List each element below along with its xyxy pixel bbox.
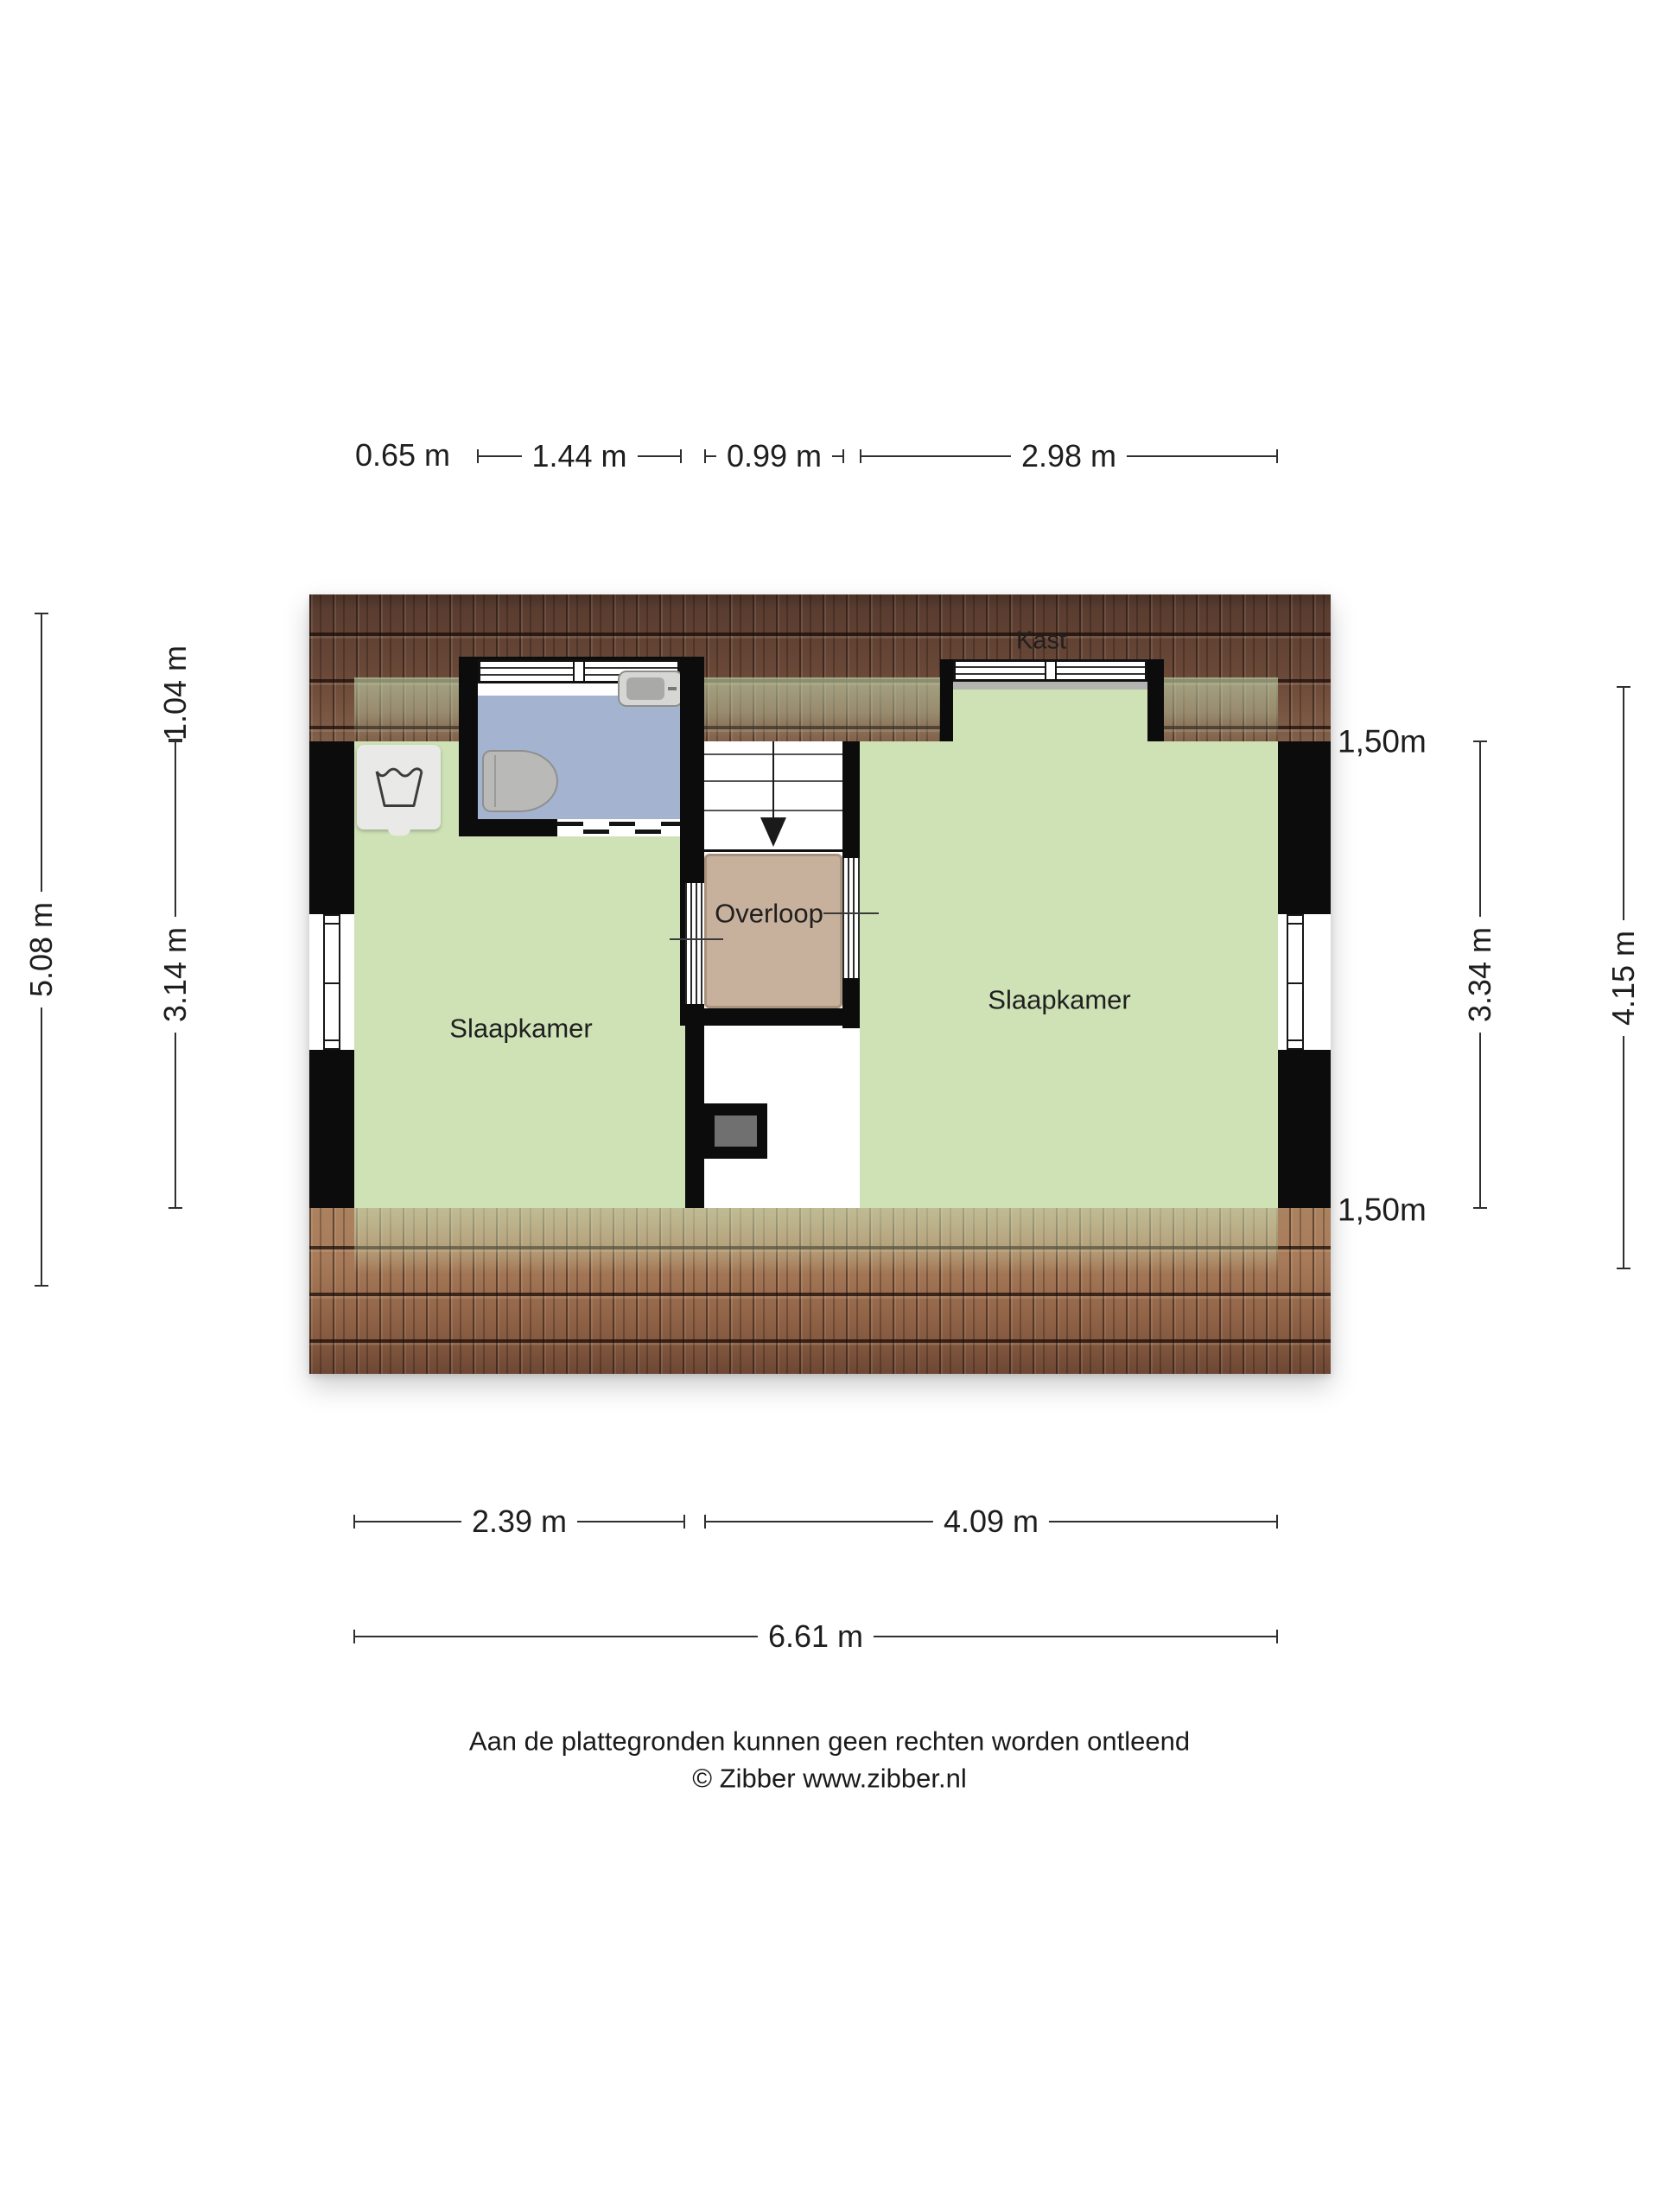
dim-right-outer-label: 4.15 m <box>1606 919 1641 1035</box>
bedroom-right-label: Slaapkamer <box>988 987 1130 1014</box>
bathroom-wall-left <box>459 659 478 826</box>
dim-left-upper-label: 1.04 m <box>158 635 193 751</box>
window-right-glazing <box>1287 914 1304 1050</box>
dim-bottom-total-label: 6.61 m <box>758 1619 874 1654</box>
dim-bottom-left-label: 2.39 m <box>461 1504 577 1539</box>
dim-right-outer: 4.15 m <box>1623 687 1624 1268</box>
dim-left-lower-label: 3.14 m <box>158 917 193 1033</box>
window-left <box>309 914 354 1050</box>
dim-top-0: 0.65 m <box>355 440 450 471</box>
dim-bottom-right: 4.09 m <box>705 1521 1277 1522</box>
closet-window <box>953 659 1147 682</box>
floorplan-drawing: Kast <box>309 594 1331 1374</box>
footer-credit: © Zibber www.zibber.nl <box>692 1762 966 1794</box>
stairwell-wall-right-upper <box>842 741 860 858</box>
washing-machine <box>357 745 441 829</box>
sink <box>618 671 683 707</box>
window-right <box>1278 914 1331 1050</box>
bathroom-sliding-door <box>557 819 683 836</box>
closet-floor <box>953 688 1147 741</box>
closet-window-mullion <box>1045 662 1057 679</box>
faucet-icon <box>668 687 677 690</box>
stairs <box>704 741 842 852</box>
bathroom-window-mullion <box>573 662 585 681</box>
footer-disclaimer: Aan de plattegronden kunnen geen rechten… <box>469 1725 1190 1757</box>
sliding-door-dash <box>557 829 683 834</box>
dim-right-inner: 3.34 m <box>1479 741 1481 1208</box>
sliding-door-dash <box>557 822 683 826</box>
dim-left-lower: 3.14 m <box>175 741 176 1208</box>
dim-top-2: 0.99 m <box>705 455 843 457</box>
laundry-icon <box>373 765 425 810</box>
landing-leader-line <box>823 912 879 914</box>
washer-notch <box>388 829 410 836</box>
height-marker-top: 1,50m <box>1338 726 1427 758</box>
sink-basin <box>626 677 664 700</box>
bedroom-right-floor <box>860 741 1278 1208</box>
dim-top-1: 1.44 m <box>478 455 681 457</box>
landing-floor <box>704 854 842 1008</box>
closet-label: Kast <box>1016 629 1066 654</box>
dim-top-3: 2.98 m <box>861 455 1277 457</box>
dim-top-3-label: 2.98 m <box>1011 439 1127 474</box>
dim-bottom-right-label: 4.09 m <box>933 1504 1049 1539</box>
dim-bottom-total: 6.61 m <box>354 1636 1277 1637</box>
dim-bottom-left: 2.39 m <box>354 1521 684 1522</box>
height-marker-bottom: 1,50m <box>1338 1194 1427 1226</box>
landing-door-opening-left <box>685 883 704 1004</box>
dim-right-inner-label: 3.34 m <box>1463 917 1497 1033</box>
closet-wall-right <box>1147 659 1164 741</box>
chimney <box>704 1103 767 1159</box>
dim-left-total: 5.08 m <box>41 613 42 1286</box>
dim-left-upper: 1.04 m <box>175 646 176 740</box>
roof-bottom-tint <box>354 1208 1278 1274</box>
toilet <box>482 750 558 812</box>
closet-sill <box>950 682 1151 690</box>
dim-top-1-label: 1.44 m <box>521 439 637 474</box>
landing-label: Overloop <box>715 900 823 927</box>
wall-middle-lower <box>685 1026 704 1208</box>
landing-door-opening-right <box>842 858 860 978</box>
bedroom-left-label: Slaapkamer <box>449 1015 592 1042</box>
stairs-direction-line <box>772 741 774 821</box>
door-leader-line <box>670 938 723 940</box>
stairs-down-arrow-icon <box>760 817 786 847</box>
floorplan-page: 0.65 m 1.44 m 0.99 m 2.98 m 5.08 m 1.04 … <box>0 0 1659 2212</box>
dim-top-2-label: 0.99 m <box>716 439 832 474</box>
window-left-glazing <box>323 914 340 1050</box>
stairs-edge <box>704 849 842 852</box>
landing-wall-bottom <box>685 1008 860 1026</box>
closet-wall-left <box>940 659 953 741</box>
chimney-inner <box>715 1116 757 1147</box>
dim-left-total-label: 5.08 m <box>24 892 59 1007</box>
